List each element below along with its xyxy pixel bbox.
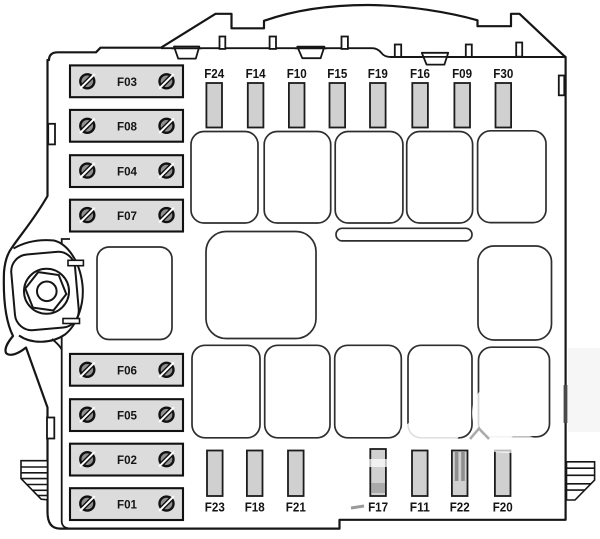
- svg-text:F16: F16: [410, 66, 430, 81]
- svg-text:F07: F07: [117, 209, 137, 223]
- svg-text:F20: F20: [493, 500, 513, 515]
- svg-text:F30: F30: [493, 66, 513, 81]
- svg-text:F09: F09: [452, 66, 472, 81]
- svg-text:F23: F23: [205, 500, 225, 515]
- svg-text:F22: F22: [450, 500, 470, 515]
- svg-text:F15: F15: [327, 66, 347, 81]
- svg-text:F06: F06: [117, 363, 137, 377]
- svg-text:F17: F17: [368, 500, 388, 515]
- svg-text:F01: F01: [117, 498, 137, 512]
- svg-text:F02: F02: [117, 453, 137, 467]
- svg-text:F10: F10: [287, 66, 307, 81]
- svg-text:F03: F03: [117, 75, 137, 89]
- svg-text:F19: F19: [368, 66, 388, 81]
- svg-text:F18: F18: [245, 500, 265, 515]
- svg-text:F08: F08: [117, 119, 137, 133]
- svg-text:F24: F24: [204, 66, 225, 81]
- svg-text:F04: F04: [117, 165, 137, 179]
- svg-text:F21: F21: [286, 500, 306, 515]
- svg-text:F14: F14: [246, 66, 267, 81]
- svg-text:F05: F05: [117, 409, 137, 423]
- svg-text:F11: F11: [410, 500, 430, 515]
